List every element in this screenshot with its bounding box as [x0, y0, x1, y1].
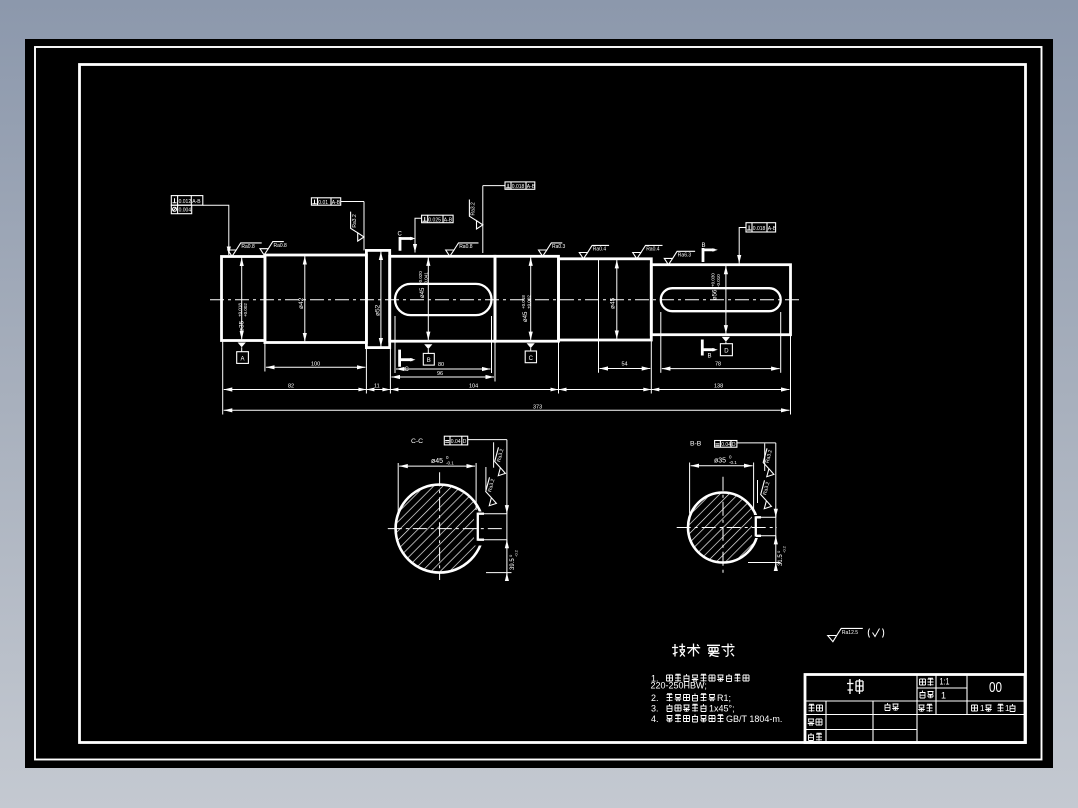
svg-text:ø56: ø56	[713, 289, 719, 300]
svg-text:0.018: 0.018	[512, 184, 525, 190]
svg-text:C: C	[398, 232, 403, 238]
svg-text:Ra0.8: Ra0.8	[241, 244, 255, 250]
svg-text:-0.2: -0.2	[514, 549, 519, 557]
svg-text:+0.018: +0.018	[521, 295, 526, 309]
svg-text:GB/T 1804-m.: GB/T 1804-m.	[726, 714, 782, 724]
svg-text:A: A	[240, 357, 244, 363]
svg-text:D: D	[732, 442, 736, 448]
svg-text:0.018: 0.018	[753, 226, 766, 232]
svg-text:Ra0.3: Ra0.3	[552, 244, 566, 250]
svg-text:B-B: B-B	[690, 441, 702, 448]
svg-text:ø52: ø52	[375, 304, 382, 316]
svg-text:+0.018: +0.018	[237, 303, 242, 317]
svg-text:Ra0.4: Ra0.4	[593, 247, 607, 253]
svg-text:-0.2: -0.2	[782, 545, 787, 553]
svg-text:-0.1: -0.1	[729, 460, 737, 465]
svg-text:82: 82	[288, 384, 294, 390]
svg-text:A-B: A-B	[527, 184, 536, 190]
svg-text:0.01: 0.01	[318, 200, 328, 206]
svg-text:+0.030: +0.030	[710, 273, 715, 287]
svg-text:ø45: ø45	[610, 297, 617, 309]
svg-text:B: B	[427, 358, 431, 364]
svg-text:A-B: A-B	[332, 200, 341, 206]
svg-text:2.: 2.	[651, 693, 659, 703]
svg-text:96: 96	[437, 371, 443, 377]
svg-text:C: C	[529, 356, 534, 362]
svg-text:1: 1	[941, 691, 946, 701]
svg-text:D: D	[463, 439, 467, 445]
svg-text:373: 373	[533, 404, 542, 410]
svg-text:A-B: A-B	[768, 226, 777, 232]
svg-text:104: 104	[469, 384, 478, 390]
svg-text:Ra0.8: Ra0.8	[459, 244, 473, 250]
svg-text:R1;: R1;	[717, 693, 731, 703]
svg-text:B: B	[708, 354, 712, 360]
svg-text:0.012: 0.012	[179, 199, 192, 205]
svg-text:11: 11	[374, 384, 380, 390]
svg-text:ø35: ø35	[239, 320, 246, 332]
svg-text:1x45°;: 1x45°;	[709, 704, 735, 714]
svg-text:0.025: 0.025	[428, 217, 441, 223]
svg-text:80: 80	[438, 362, 444, 368]
svg-text:78: 78	[715, 362, 721, 368]
svg-text:ø45: ø45	[420, 287, 426, 298]
svg-text:Ra0.8: Ra0.8	[274, 243, 288, 249]
svg-text:A-B: A-B	[192, 199, 201, 205]
svg-text:3.: 3.	[651, 704, 659, 714]
svg-text:ø45: ø45	[431, 458, 443, 465]
svg-text:+0.002: +0.002	[526, 295, 531, 309]
svg-text:+0.020: +0.020	[418, 271, 423, 285]
svg-text:138: 138	[714, 384, 723, 390]
svg-text:-0.041: -0.041	[423, 272, 428, 285]
svg-text:31.5: 31.5	[778, 554, 784, 566]
svg-text:ø45: ø45	[523, 311, 529, 322]
svg-text:+0.002: +0.002	[243, 303, 248, 317]
svg-text:Ra12.5: Ra12.5	[842, 630, 858, 636]
svg-text:4.: 4.	[651, 714, 659, 724]
svg-text:100: 100	[311, 361, 320, 367]
svg-text:A-B: A-B	[444, 217, 453, 223]
svg-text:C-C: C-C	[411, 438, 423, 445]
svg-text:-0.010: -0.010	[716, 274, 721, 287]
svg-text:-0.1: -0.1	[446, 461, 454, 466]
svg-text:Ra3.2: Ra3.2	[352, 214, 358, 228]
svg-text:54: 54	[622, 362, 628, 368]
svg-text:1: 1	[1005, 704, 1010, 713]
svg-text:0.04: 0.04	[451, 439, 461, 445]
svg-text:0.04: 0.04	[721, 442, 731, 448]
svg-text:39.5: 39.5	[510, 558, 516, 570]
svg-text:ø42: ø42	[298, 297, 305, 309]
svg-text:C: C	[405, 367, 410, 373]
svg-text:ø35: ø35	[714, 458, 726, 465]
svg-text:0.004: 0.004	[179, 208, 192, 214]
svg-text:1:1: 1:1	[940, 677, 950, 687]
svg-text:D: D	[724, 349, 729, 355]
svg-text:220-250HBW;: 220-250HBW;	[651, 681, 707, 691]
svg-text:1: 1	[980, 704, 985, 713]
svg-text:00: 00	[989, 679, 1002, 696]
svg-text:Ra0.4: Ra0.4	[646, 247, 660, 253]
svg-text:Ra6.3: Ra6.3	[678, 253, 692, 259]
svg-text:Ra3.2: Ra3.2	[471, 202, 477, 216]
